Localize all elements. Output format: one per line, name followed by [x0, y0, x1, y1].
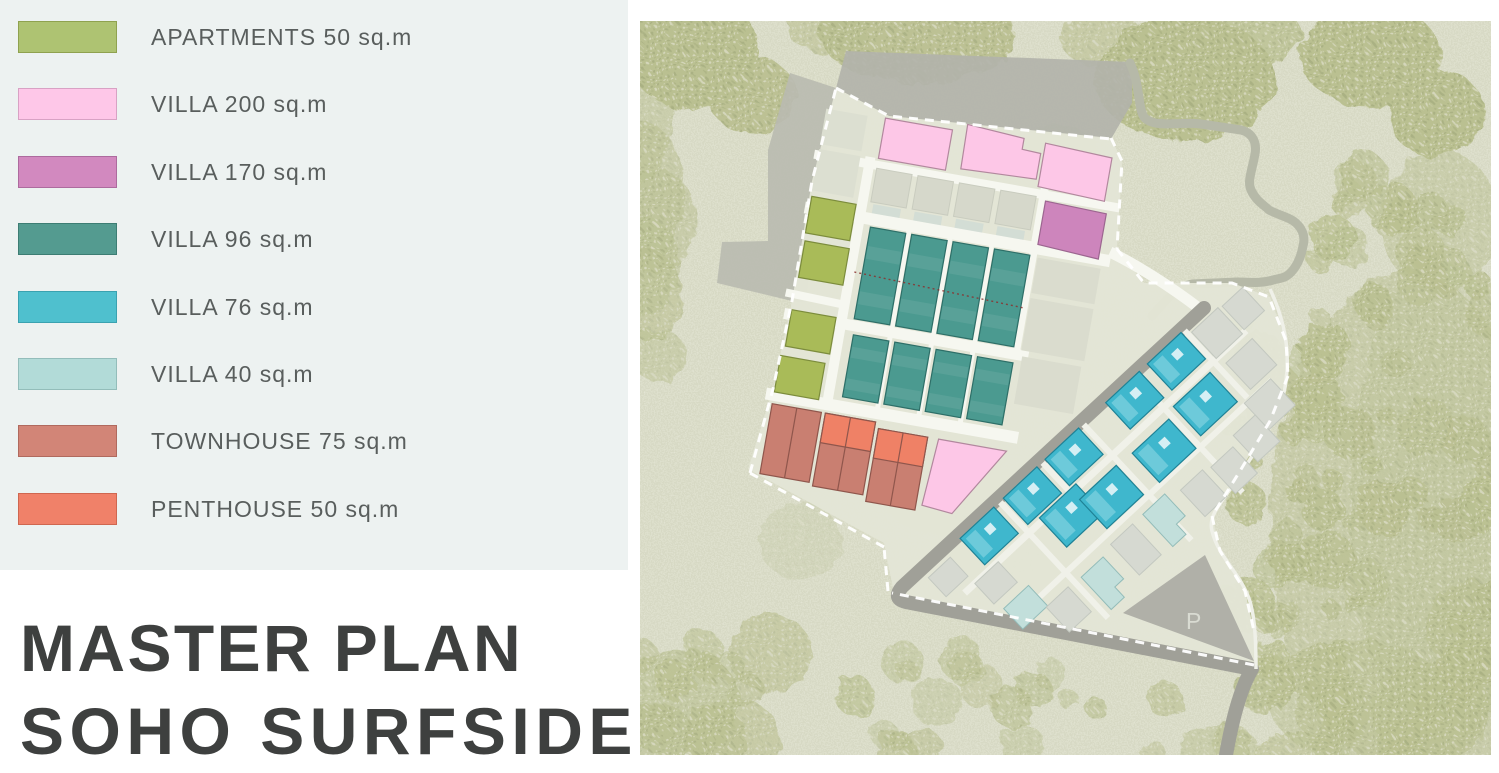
svg-text:P: P	[1186, 608, 1201, 634]
